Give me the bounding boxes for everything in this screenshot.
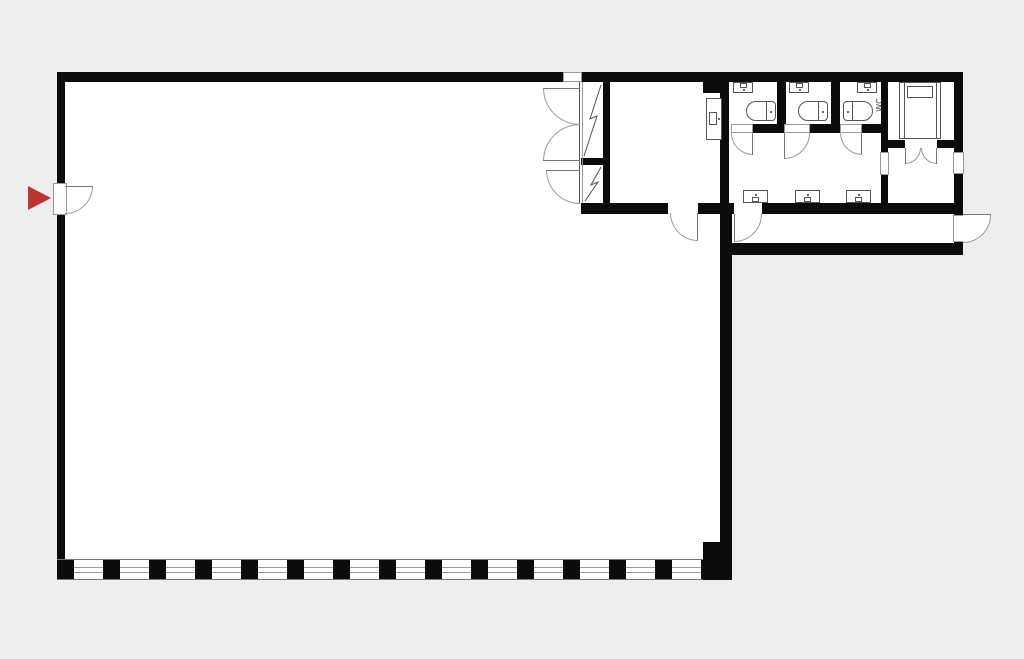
wall-top (57, 72, 963, 82)
stall3-door-gap (840, 124, 862, 133)
closet-front-line-2 (582, 82, 583, 203)
sideroom-basin-dot (718, 118, 720, 120)
wall-wcroom-bottom-a (888, 140, 905, 148)
washroom-basin-1 (743, 190, 768, 203)
washroom-basin-1-dot (755, 194, 757, 196)
wall-stall-front-c (862, 124, 881, 133)
wcroom-door-leaf-left (905, 148, 906, 164)
closet-door-leaf-2 (543, 160, 580, 161)
stall2-door-gap (784, 124, 810, 133)
wc-label-text: WC (875, 98, 884, 112)
floor-plan: WC (0, 0, 1024, 659)
toilet-fixture-1 (746, 101, 776, 121)
washroom-basin-2 (795, 190, 820, 203)
toilet-fixture-2 (798, 101, 828, 121)
stall1-basin (733, 82, 753, 93)
corridor-door-leaf (734, 214, 735, 242)
shower-unit-side-left (904, 83, 905, 138)
corner-pillar-bottom (703, 542, 732, 580)
toilet3-tank-line (852, 102, 853, 120)
washroom-basin-3 (846, 190, 871, 203)
exterior-door-arc (963, 215, 991, 243)
vestibule-opening-left (880, 152, 889, 175)
wall-right-main (720, 203, 732, 580)
stall2-basin-tap (796, 83, 803, 88)
washroom-basin-3-tap (855, 197, 862, 202)
exterior-door-leaf (963, 214, 991, 215)
stall2-basin-dot (799, 89, 801, 91)
stall1-door-leaf (752, 133, 753, 155)
sideroom-basin-tap (709, 112, 717, 125)
entrance-arrow-icon (28, 186, 51, 210)
closet-door-leaf-1 (543, 88, 580, 89)
toilet1-tank-line (766, 102, 767, 120)
entrance-door-leaf (65, 186, 93, 187)
stall1-basin-dot (743, 89, 745, 91)
stall2-basin (789, 82, 809, 93)
stall3-basin-tap (864, 83, 871, 88)
shower-unit-head (907, 86, 933, 98)
top-wall-window (563, 72, 582, 82)
stall1-basin-tap (740, 83, 747, 88)
washroom-basin-2-dot (807, 194, 809, 196)
window-band (57, 559, 703, 580)
stall1-door-gap (731, 124, 753, 133)
toilet3-dot (847, 111, 849, 113)
sideroom-door-leaf (697, 213, 698, 241)
toilet2-tank-line (818, 102, 819, 120)
closet-door-leaf-3 (546, 170, 580, 171)
wall-wcroom-bottom-b (937, 140, 954, 148)
wall-shaft-right (603, 82, 610, 203)
wcroom-door-leaf-right (936, 148, 937, 164)
wall-sideroom-bottom-a (581, 203, 668, 214)
wall-left-upper (57, 82, 65, 183)
toilet1-dot (770, 111, 772, 113)
washroom-basin-1-tap (752, 197, 759, 202)
wc-room-label: WC (867, 92, 891, 118)
window-piers (57, 560, 703, 579)
shower-unit-side-right (936, 83, 937, 138)
stall3-door-leaf (861, 133, 862, 155)
sideroom-basin (706, 98, 722, 140)
main-hall-floor (65, 82, 732, 559)
washroom-basin-3-dot (858, 194, 860, 196)
wall-vestibule-bottom (881, 203, 963, 214)
wall-sideroom-bottom-b (698, 203, 722, 214)
stall3-basin-dot (867, 89, 869, 91)
toilet2-dot (822, 111, 824, 113)
wall-shaft-divider (581, 158, 610, 165)
stall2-door-leaf (784, 133, 785, 159)
wall-annex-right-upper (954, 82, 963, 152)
wall-left-lower (57, 215, 65, 559)
wall-wc-lower (881, 175, 888, 214)
wall-annex-bottom (732, 243, 963, 255)
wall-washroom-bottom-a (720, 203, 734, 214)
vestibule-window-right (953, 152, 964, 174)
wall-stall-divider-2 (831, 82, 840, 133)
wall-washroom-bottom-b (762, 203, 881, 214)
washroom-basin-2-tap (804, 197, 811, 202)
shower-unit (899, 82, 941, 139)
